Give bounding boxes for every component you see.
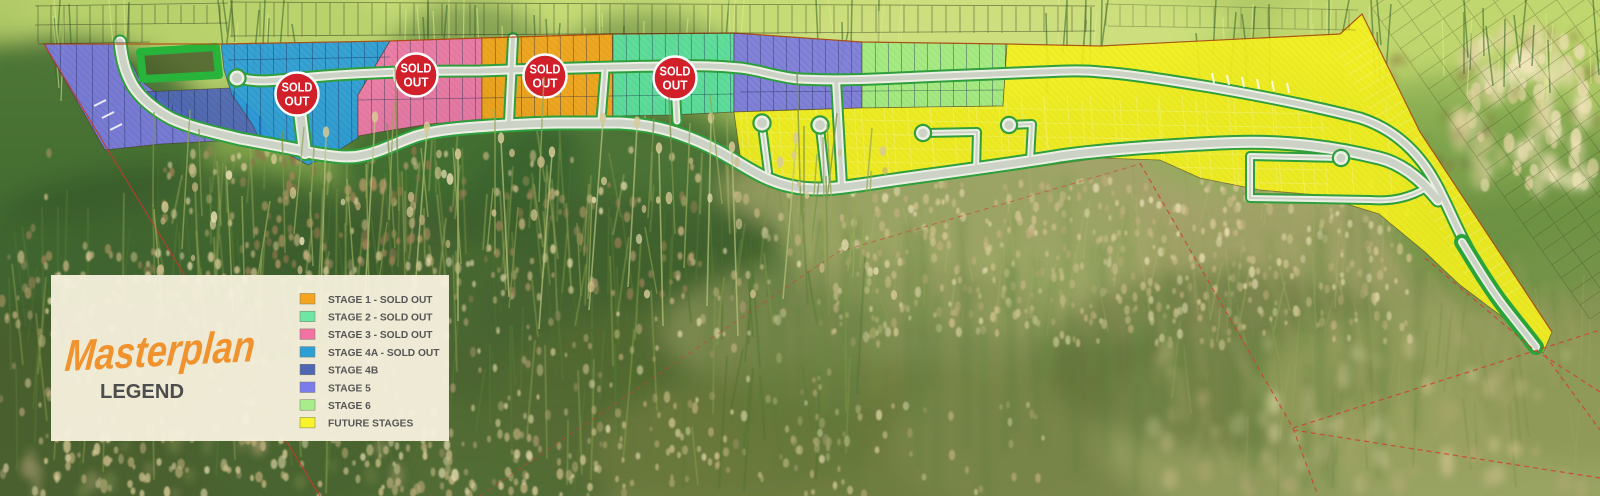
svg-text:STAGE 1 - SOLD OUT: STAGE 1 - SOLD OUT (328, 295, 433, 306)
svg-text:OUT: OUT (404, 75, 429, 90)
svg-text:FUTURE STAGES: FUTURE STAGES (328, 419, 413, 430)
svg-text:OUT: OUT (533, 76, 558, 91)
svg-text:OUT: OUT (663, 78, 688, 93)
svg-text:OUT: OUT (285, 94, 310, 109)
svg-text:LEGEND: LEGEND (100, 381, 184, 403)
svg-text:STAGE 6: STAGE 6 (328, 401, 371, 412)
svg-text:STAGE 4B: STAGE 4B (328, 366, 378, 377)
svg-text:SOLD: SOLD (660, 64, 691, 79)
svg-text:SOLD: SOLD (401, 61, 432, 76)
svg-text:STAGE 2 - SOLD OUT: STAGE 2 - SOLD OUT (328, 313, 433, 324)
svg-text:STAGE 5: STAGE 5 (328, 383, 371, 394)
svg-text:SOLD: SOLD (282, 80, 313, 95)
svg-text:STAGE 3 - SOLD OUT: STAGE 3 - SOLD OUT (328, 330, 433, 341)
svg-text:Masterplan: Masterplan (63, 322, 257, 381)
svg-text:STAGE 4A - SOLD OUT: STAGE 4A - SOLD OUT (328, 348, 440, 359)
svg-text:SOLD: SOLD (530, 62, 561, 77)
